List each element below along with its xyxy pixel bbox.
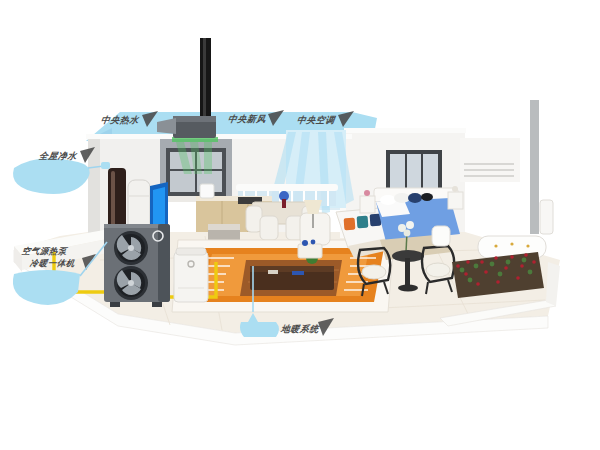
house-system-illustration: 中央热水 中央新风 中央空调 全屋净水 空气源热泵 冷暖一体机 地暖系统 <box>0 0 600 450</box>
label-central-air-conditioning: 中央空调 <box>296 114 336 126</box>
scene-svg <box>0 0 600 450</box>
label-central-hot-water: 中央热水 <box>100 114 140 126</box>
label-water-purifier: 全屋净水 <box>38 150 78 162</box>
label-floor-heating: 地暖系统 <box>280 323 320 335</box>
nightstand <box>360 196 375 213</box>
fan <box>114 266 148 300</box>
label-heat-pump-line2: 冷暖一体机 <box>29 257 76 269</box>
label-central-fresh-air: 中央新风 <box>227 113 267 125</box>
shower-column <box>530 100 539 234</box>
pedestal-sink <box>540 200 553 234</box>
heat-pump-outdoor-unit <box>104 224 170 307</box>
countertop-appliance <box>200 184 214 198</box>
nightstand <box>448 192 463 209</box>
right-parapet-side <box>546 262 560 306</box>
hydronic-module <box>174 248 208 302</box>
fan <box>114 231 148 265</box>
label-heat-pump-line1: 空气源热泵 <box>21 245 68 257</box>
fresh-air-duct <box>157 38 216 138</box>
side-table <box>298 244 322 258</box>
toilet <box>432 226 450 246</box>
